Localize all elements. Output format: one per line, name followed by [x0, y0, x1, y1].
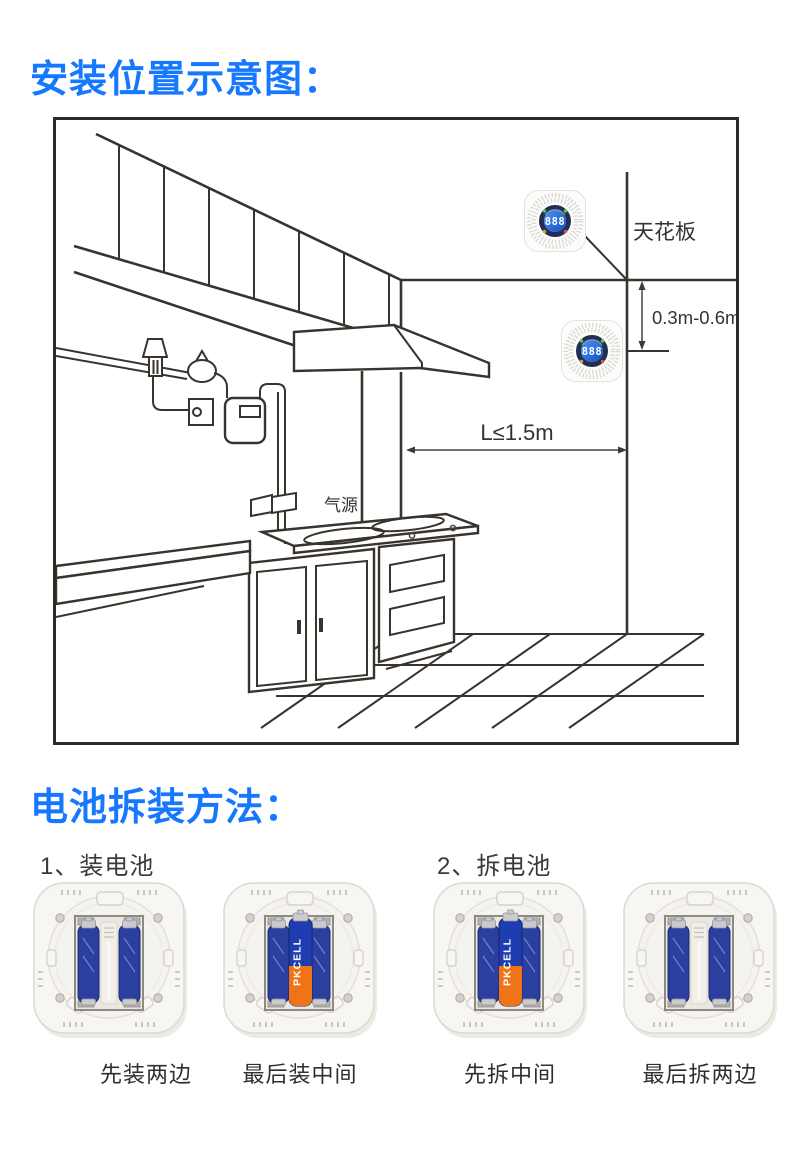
ceiling-distance-label: 0.3m-0.6m — [652, 307, 736, 328]
countertop — [56, 541, 250, 617]
sloped-ceiling-beams — [74, 134, 401, 346]
install-section-title: 安装位置示意图： — [30, 48, 342, 103]
detector-2-display: 888 — [582, 346, 602, 358]
battery-photo-sides-installed — [20, 876, 200, 1046]
installation-diagram: 0.3m-0.6m L≤1.5m 天花板 气源 888 888 — [53, 117, 739, 745]
horizontal-distance-label: L≤1.5m — [480, 420, 553, 445]
battery-photo-before-middle-removal: PKCELL — [420, 876, 600, 1046]
photo-caption-1: 先装两边 — [56, 1057, 236, 1089]
detector-1-display: 888 — [545, 216, 565, 228]
gas-detector-1: 888 — [525, 191, 586, 252]
gas-source-label: 气源 — [324, 496, 358, 515]
battery-photo-sides-remaining — [610, 876, 790, 1046]
battery-brand-label: PKCELL — [292, 938, 304, 986]
gas-pipe-and-meter — [56, 339, 296, 544]
battery-photo-middle-installed: PKCELL — [210, 876, 390, 1046]
ceiling-distance-dimension: 0.3m-0.6m — [627, 281, 736, 351]
battery-section-title: 电池拆装方法： — [30, 776, 303, 831]
range-hood — [294, 325, 489, 523]
battery-brand-label: PKCELL — [502, 938, 514, 986]
photo-caption-2: 最后装中间 — [210, 1057, 390, 1089]
ceiling-pointer-line — [583, 234, 627, 280]
photo-caption-4: 最后拆两边 — [610, 1057, 790, 1089]
photo-caption-3: 先拆中间 — [420, 1057, 600, 1089]
horizontal-distance-dimension: L≤1.5m — [406, 420, 627, 454]
gas-detector-2: 888 — [562, 321, 623, 382]
ceiling-label: 天花板 — [633, 221, 696, 244]
kitchen-line-art: 0.3m-0.6m L≤1.5m 天花板 气源 888 888 — [56, 120, 736, 742]
page: { "titles": { "install": "安装位置示意图：", "ba… — [0, 0, 790, 1157]
